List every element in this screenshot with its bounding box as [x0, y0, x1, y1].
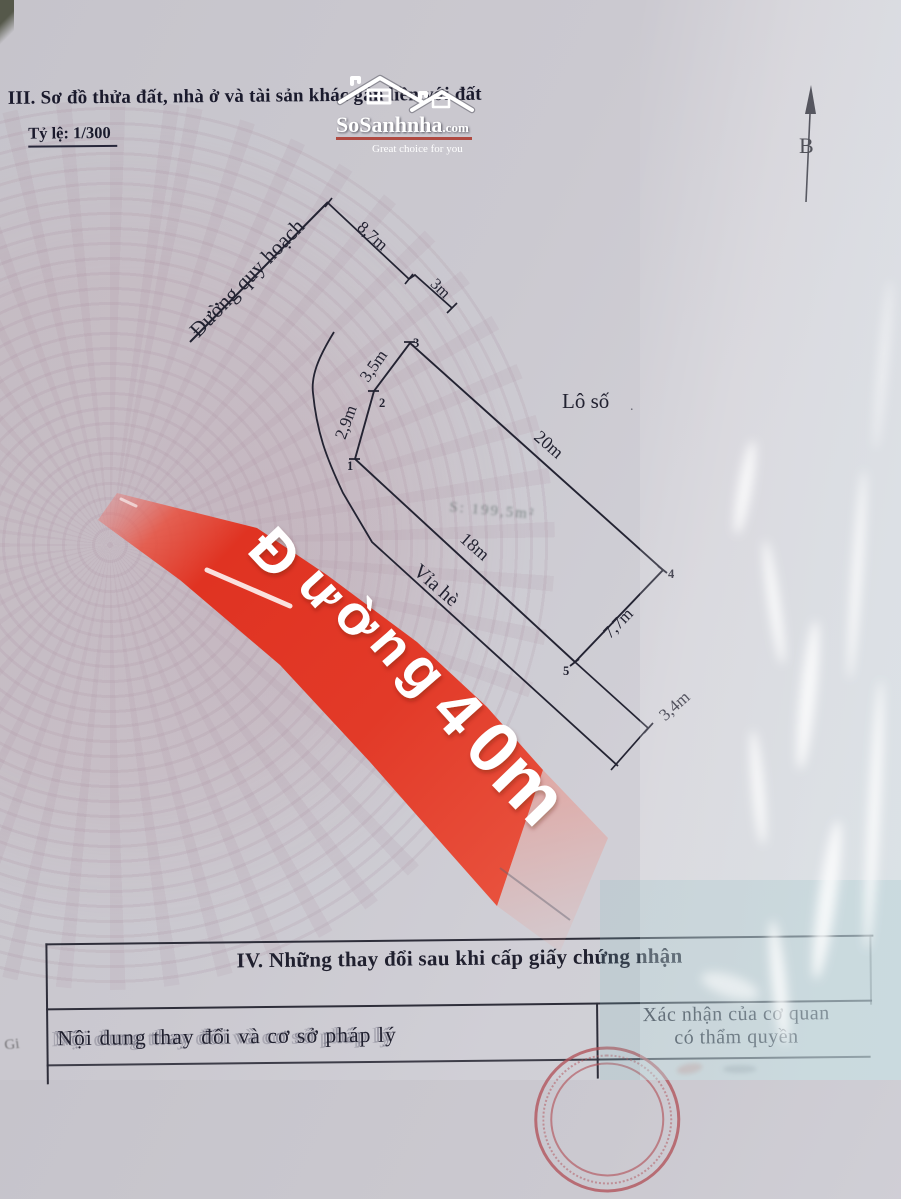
- ribbon-fade-tail: [497, 770, 608, 952]
- plastic-glare: [0, 0, 901, 1080]
- sleeve-crease-line: [500, 868, 570, 920]
- table-column-divider: [596, 1003, 599, 1079]
- sidewalk-line: [313, 332, 618, 766]
- vertex-3: 3: [413, 336, 419, 350]
- banner-letter: 0: [450, 706, 536, 790]
- dim-3-5m: 3,5m: [356, 346, 391, 385]
- table-right-border: [869, 935, 872, 1005]
- dim-3m: 3m: [427, 276, 454, 303]
- dim-8-7m: 8,7m: [354, 217, 392, 254]
- ribbon-glint-small: [121, 499, 136, 506]
- photo-corner-artifact: [0, 0, 14, 46]
- scale-label: Tỷ lệ: 1/300: [28, 123, 117, 148]
- table-top-border: [45, 935, 873, 946]
- vertex-1: 1: [347, 459, 353, 473]
- ribbon-shape: [98, 493, 543, 906]
- sidewalk-label: Vỉa hè: [409, 560, 463, 611]
- header: III. Sơ đồ thửa đất, nhà ở và tài sản kh…: [8, 80, 888, 148]
- pencil-smudge: [723, 1065, 757, 1073]
- lot-number-label: Lô số: [562, 389, 610, 413]
- col-header-content: Nội dung thay đổi và cơ sở pháp lý: [57, 1023, 397, 1052]
- banner-letter: 4: [418, 673, 498, 750]
- ribbon-text: Đ ư ờ n g 4 0 m: [236, 514, 584, 842]
- parcel-boundary: [355, 343, 663, 662]
- banner-letter: Đ: [236, 514, 315, 591]
- lot-label-dot: .: [630, 399, 634, 414]
- margin-mark: Gi: [4, 1036, 21, 1055]
- table-header-divider: [46, 1000, 872, 1011]
- vertex-4: 4: [668, 567, 675, 581]
- section3-title: III. Sơ đồ thửa đất, nhà ở và tài sản kh…: [8, 80, 888, 110]
- table-left-border: [45, 943, 48, 1084]
- ribbon-glint: [207, 570, 290, 606]
- section4-table: IV. Những thay đổi sau khi cấp giấy chứn…: [0, 0, 901, 1085]
- ink-smudge: [676, 1061, 703, 1076]
- banner-letter: ư: [287, 554, 358, 624]
- banner-letter: g: [388, 637, 460, 706]
- table-row-divider: [47, 1056, 871, 1067]
- diagram-labels: 8,7m 3m 3,5m 2,9m 20m 18m 7,7m 3,4m 1 2 …: [185, 214, 694, 724]
- dim-18m: 18m: [456, 528, 493, 564]
- dim-3-4m: 3,4m: [655, 687, 693, 724]
- diagram-lines: [190, 198, 667, 770]
- dim-20m: 20m: [530, 426, 567, 462]
- banner-letter: m: [476, 734, 584, 842]
- banner-letter: ờ: [322, 582, 396, 654]
- col-header-confirmation: Xác nhận của cơ quan có thẩm quyền: [602, 1002, 870, 1051]
- scanned-land-certificate-photo: { "document": { "section3_title": "III. …: [0, 0, 901, 1080]
- vertex-2: 2: [379, 396, 385, 410]
- guilloche-tint: [60, 330, 480, 800]
- planned-road-label: Đường quy hoạch: [185, 214, 310, 342]
- logo-tagline: Great choice for you: [372, 143, 463, 155]
- section4-title: IV. Những thay đổi sau khi cấp giấy chứn…: [119, 942, 799, 974]
- red-stamp: [533, 1046, 681, 1194]
- planned-road-line: [190, 202, 328, 342]
- dim-7-7m: 7,7m: [599, 604, 637, 642]
- plot-diagram: 8,7m 3m 3,5m 2,9m 20m 18m 7,7m 3,4m 1 2 …: [0, 0, 901, 1080]
- road-ribbon-overlay: Đ ư ờ n g 4 0 m: [0, 0, 901, 1080]
- banner-letter: n: [359, 613, 426, 677]
- guilloche-emblem: [0, 100, 555, 990]
- area-faint-text: S: 199,5m²: [449, 499, 536, 522]
- dim-2-9m: 2,9m: [331, 403, 361, 442]
- vertex-5: 5: [563, 664, 569, 678]
